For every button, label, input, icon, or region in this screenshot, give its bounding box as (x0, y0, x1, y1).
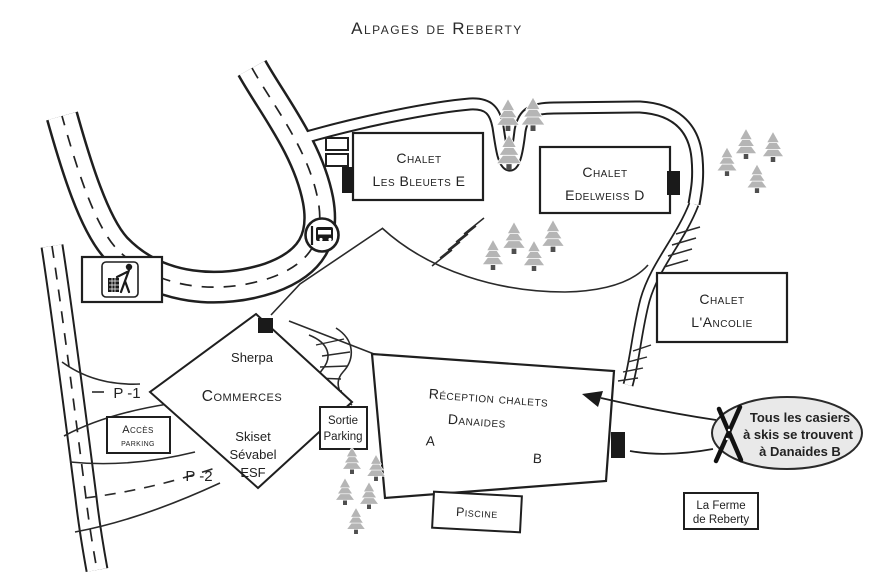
bleuets-entrance (342, 167, 354, 193)
commerces-label: Commerces (202, 388, 282, 405)
shop-sherpa: Sherpa (231, 350, 274, 365)
p1-label: P -1 (113, 385, 140, 402)
danaides-b-entrance (611, 432, 625, 458)
wing-a-label: A (425, 433, 435, 449)
parking-bay-2 (326, 154, 348, 166)
ancolie-label-2: L'Ancolie (691, 314, 753, 330)
bleuets-label-2: Les Bleuets E (373, 173, 466, 189)
map-title: Alpages de Reberty (351, 19, 523, 38)
bleuets-label-1: Chalet (396, 150, 441, 166)
edelweiss-label-1: Chalet (582, 164, 627, 180)
piscine-label: Piscine (456, 505, 499, 521)
callout-text-2: à skis se trouvent (743, 427, 853, 442)
sortie-parking-label-2: Parking (324, 431, 363, 443)
chalet-ancolie-box (657, 273, 787, 342)
map-canvas: Alpages de Reberty Chalet Les Bleuets E … (0, 0, 875, 575)
ferme-label-2: de Reberty (693, 514, 750, 526)
litter-bin-icon (82, 257, 162, 302)
edelweiss-entrance (667, 171, 680, 195)
parking-bay-1 (326, 138, 348, 150)
callout-text-1: Tous les casiers (750, 410, 850, 425)
wing-b-label: B (532, 451, 542, 467)
shop-esf: ESF (240, 465, 265, 480)
callout-text-3: à Danaides B (759, 444, 841, 459)
resort-map-svg: Alpages de Reberty Chalet Les Bleuets E … (0, 0, 875, 575)
commerces-entrance (258, 318, 273, 333)
shop-sevabel: Sévabel (230, 447, 277, 462)
callout-line-to-b (630, 449, 713, 454)
shop-skiset: Skiset (235, 429, 271, 444)
chalet-bleuets-box (353, 133, 483, 200)
acces-parking-label-2: parking (121, 438, 155, 449)
chalet-edelweiss-box (540, 147, 670, 213)
ancolie-label-1: Chalet (699, 291, 744, 307)
sortie-parking-label-1: Sortie (328, 415, 358, 427)
callout-arrow-line (601, 398, 716, 420)
p2-label: P -2 (185, 468, 212, 485)
acces-parking-label-1: Accès (122, 424, 154, 436)
ferme-label-1: La Ferme (696, 500, 745, 512)
path-square-to-reception (289, 321, 374, 354)
slope-hatching-west (432, 218, 484, 266)
edelweiss-label-2: Edelweiss D (565, 187, 645, 203)
bus-stop-icon (306, 219, 339, 252)
